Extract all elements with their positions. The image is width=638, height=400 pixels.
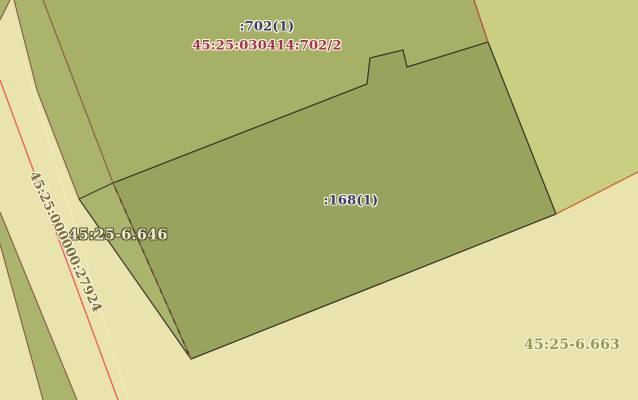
cadastral-map-viewport[interactable]: :702(1) 45:25:030414:702/2 :168(1) 45:25… [0, 0, 638, 400]
cadastral-map-canvas[interactable] [0, 0, 638, 400]
